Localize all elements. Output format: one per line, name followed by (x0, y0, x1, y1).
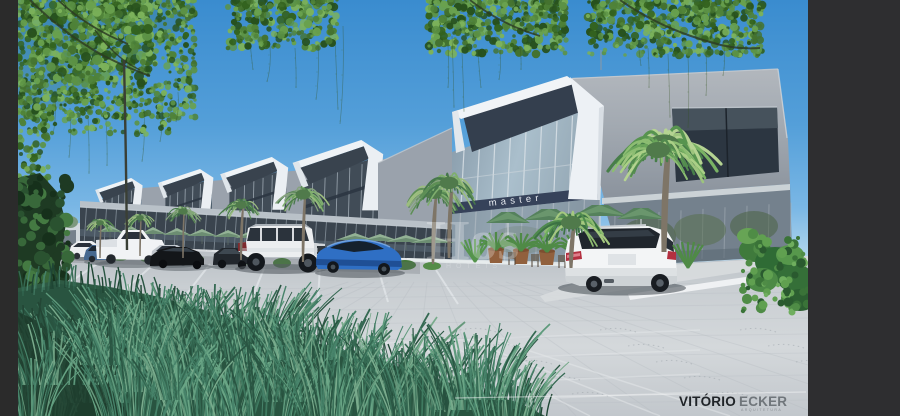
svg-text:VITÓRIO: VITÓRIO (679, 394, 736, 409)
svg-text:ECKER: ECKER (739, 394, 787, 409)
svg-text:ARQUITETURA: ARQUITETURA (741, 408, 782, 412)
svg-text:HOTEIS: HOTEIS (446, 263, 502, 270)
